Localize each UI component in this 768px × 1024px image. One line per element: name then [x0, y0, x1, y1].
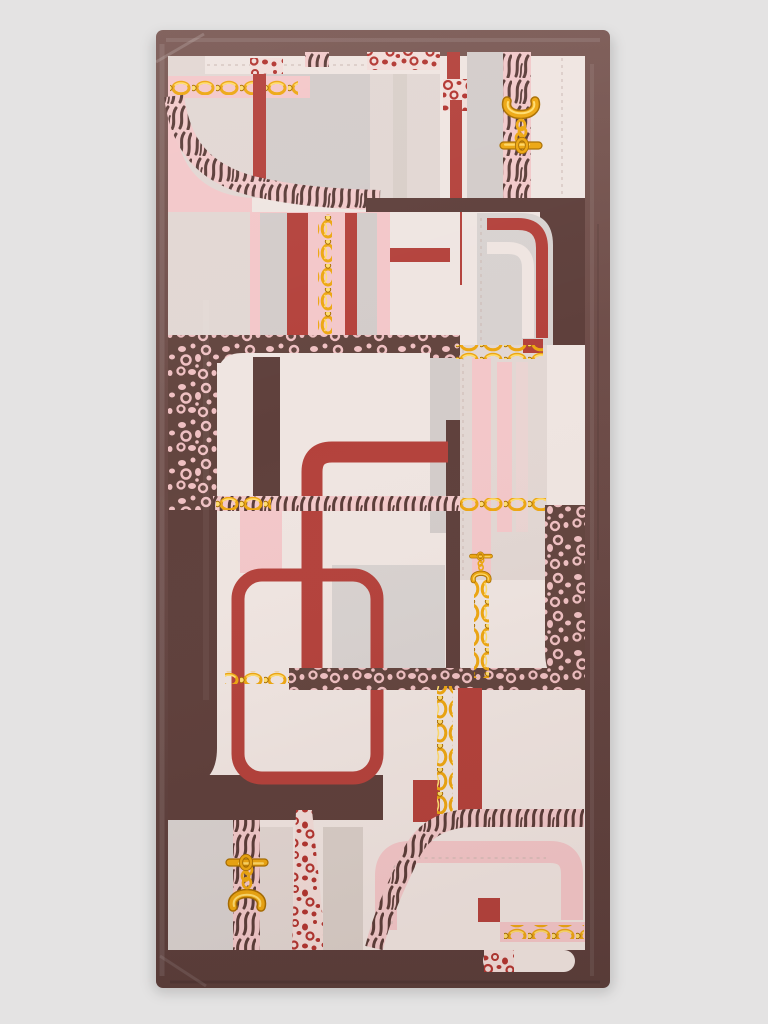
scarf [156, 30, 610, 988]
page: { "image": { "alt": "Product photo of a … [0, 0, 768, 1024]
fabric-texture [156, 30, 610, 988]
scarf-image [0, 0, 768, 1024]
product-photo [0, 0, 768, 1024]
